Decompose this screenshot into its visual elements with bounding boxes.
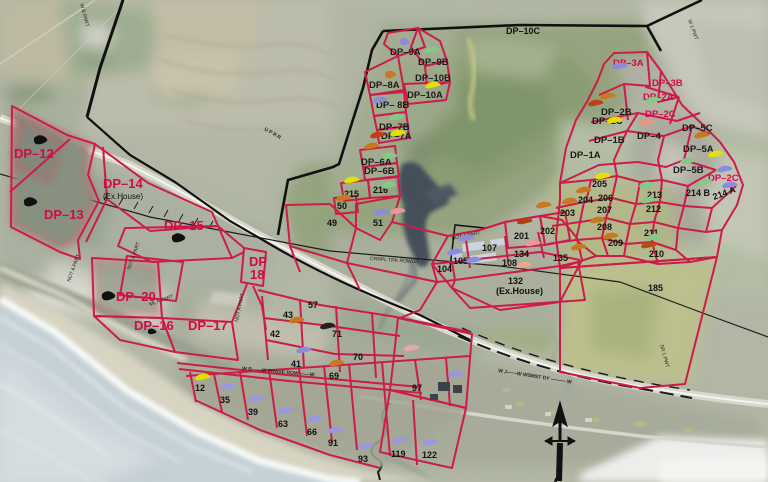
svg-text:119: 119	[391, 449, 406, 459]
svg-text:DP–10C: DP–10C	[506, 26, 541, 36]
svg-text:50: 50	[337, 201, 347, 211]
svg-text:105: 105	[453, 256, 468, 266]
svg-text:DP–4: DP–4	[637, 131, 661, 142]
svg-text:DP–5A: DP–5A	[683, 144, 714, 155]
svg-text:202: 202	[540, 226, 555, 236]
svg-text:208: 208	[597, 222, 612, 232]
svg-text:42: 42	[270, 329, 280, 339]
svg-text:107: 107	[482, 243, 497, 253]
svg-text:49: 49	[327, 218, 337, 228]
svg-text:203: 203	[560, 208, 575, 218]
svg-text:DP–1B: DP–1B	[594, 135, 625, 146]
svg-text:132: 132	[508, 276, 523, 286]
svg-text:DP–9A: DP–9A	[390, 47, 421, 58]
svg-text:204: 204	[578, 195, 593, 205]
svg-text:DP–2C: DP–2C	[645, 109, 676, 120]
svg-text:39: 39	[248, 407, 258, 417]
svg-text:35: 35	[220, 395, 230, 405]
svg-text:DP–6B: DP–6B	[364, 166, 395, 177]
svg-text:12: 12	[195, 383, 205, 393]
svg-text:63: 63	[278, 419, 288, 429]
svg-text:DP–10A: DP–10A	[407, 90, 443, 101]
svg-text:DP–17: DP–17	[188, 318, 228, 333]
svg-text:(Ex.House): (Ex.House)	[103, 192, 143, 201]
svg-text:104: 104	[437, 264, 452, 274]
svg-text:DP–5B: DP–5B	[673, 165, 704, 176]
svg-text:DP–8A: DP–8A	[369, 80, 400, 91]
svg-text:70: 70	[353, 352, 363, 362]
svg-text:214 B: 214 B	[686, 188, 711, 198]
svg-text:206: 206	[598, 193, 613, 203]
svg-text:209: 209	[608, 238, 623, 248]
svg-text:210: 210	[649, 249, 664, 259]
svg-text:DP–13: DP–13	[44, 207, 84, 222]
svg-text:108: 108	[502, 258, 517, 268]
svg-text:51: 51	[373, 218, 383, 228]
svg-text:DP–3B: DP–3B	[652, 78, 683, 89]
svg-text:134: 134	[514, 249, 529, 259]
svg-text:207: 207	[597, 205, 612, 215]
svg-text:71: 71	[332, 329, 342, 339]
svg-text:DP–9B: DP–9B	[418, 57, 449, 68]
svg-text:69: 69	[329, 371, 339, 381]
svg-text:57: 57	[308, 300, 318, 310]
svg-text:DP–15: DP–15	[164, 218, 204, 233]
svg-text:DP–1A: DP–1A	[570, 150, 601, 161]
svg-text:201: 201	[514, 231, 529, 241]
svg-text:93: 93	[358, 454, 368, 464]
svg-text:91: 91	[328, 438, 338, 448]
svg-text:135: 135	[553, 253, 568, 263]
svg-text:(Ex.House): (Ex.House)	[496, 286, 543, 296]
svg-text:66: 66	[307, 427, 317, 437]
svg-text:185: 185	[648, 283, 663, 293]
svg-text:97: 97	[412, 383, 422, 393]
svg-text:212: 212	[646, 204, 661, 214]
svg-text:DP–5C: DP–5C	[682, 123, 713, 134]
svg-text:122: 122	[422, 450, 437, 460]
svg-text:205: 205	[592, 179, 607, 189]
svg-text:18: 18	[250, 267, 264, 282]
svg-text:DP–14: DP–14	[103, 176, 144, 191]
svg-text:DP–12: DP–12	[14, 146, 54, 161]
svg-text:41: 41	[291, 359, 301, 369]
